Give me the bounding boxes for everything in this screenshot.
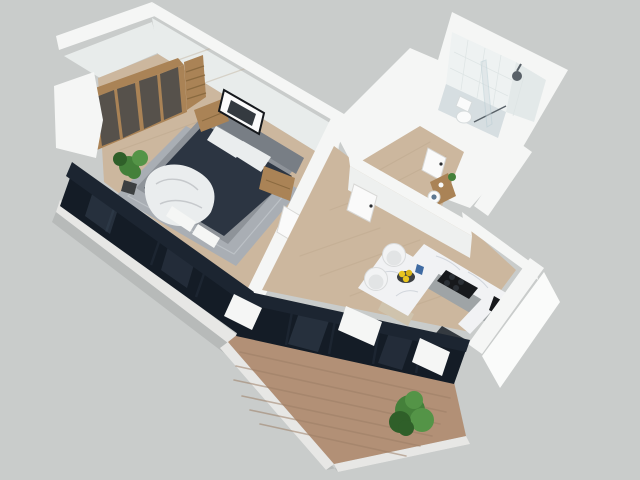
toilet-bowl bbox=[457, 111, 472, 123]
plant-foliage bbox=[127, 165, 141, 179]
floorplan-render bbox=[0, 0, 640, 480]
dining-chair-seat bbox=[387, 251, 402, 266]
fruit bbox=[406, 270, 412, 276]
small-appliance-door bbox=[431, 194, 436, 199]
cooktop-burner bbox=[449, 274, 455, 280]
dining-chair-seat bbox=[369, 275, 384, 290]
fruit bbox=[399, 271, 405, 277]
plant-foliage bbox=[132, 150, 148, 166]
plant-foliage bbox=[113, 152, 127, 166]
shrub-foliage bbox=[398, 420, 414, 436]
cooktop-burner bbox=[453, 285, 459, 291]
corridor-door-handle bbox=[439, 162, 442, 165]
fruit bbox=[403, 276, 409, 282]
console-plant bbox=[448, 173, 456, 181]
cooktop-burner bbox=[444, 280, 450, 286]
west-pillar bbox=[54, 72, 103, 158]
cooktop-burner bbox=[458, 279, 464, 285]
hall-door-handle bbox=[369, 204, 372, 207]
shower-head bbox=[512, 71, 522, 81]
shrub-foliage bbox=[405, 391, 423, 409]
console-deco bbox=[439, 183, 444, 188]
floorplan-svg bbox=[0, 0, 640, 480]
